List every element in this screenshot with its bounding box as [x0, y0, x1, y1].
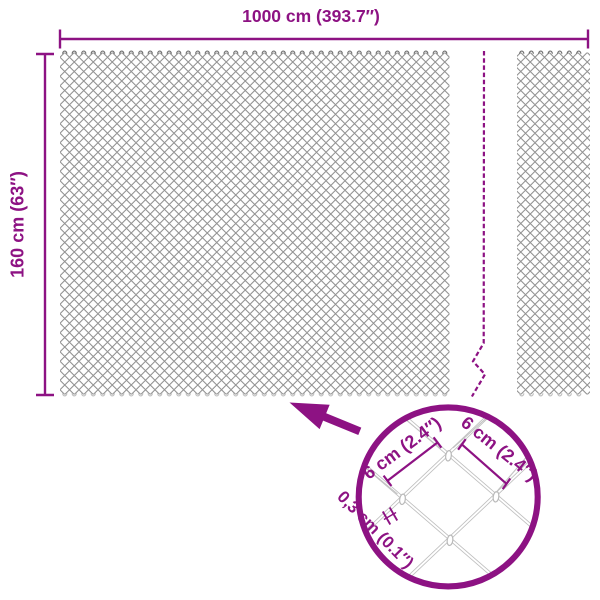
svg-text:1000 cm (393.7″): 1000 cm (393.7″) [242, 6, 380, 26]
svg-text:160 cm (63″): 160 cm (63″) [8, 171, 28, 278]
